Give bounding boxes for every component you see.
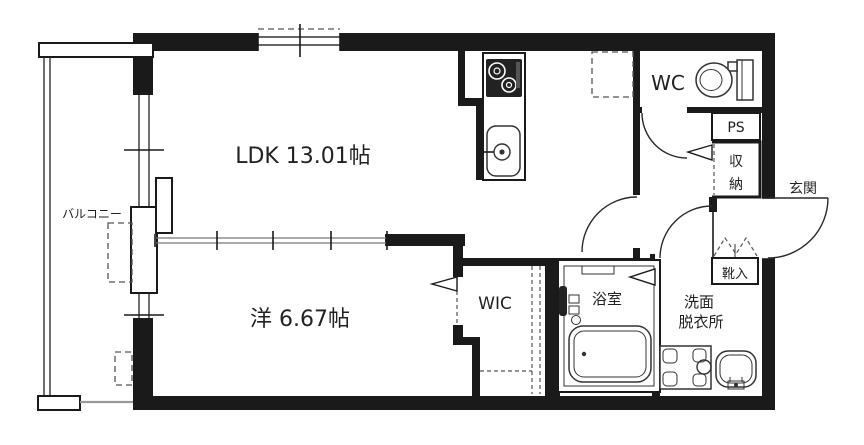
label-wc: WC <box>651 71 685 95</box>
label-ldk: LDK 13.01帖 <box>235 144 371 169</box>
ldk-door-arc <box>582 197 637 252</box>
bathtub <box>569 326 651 382</box>
balcony-window <box>124 95 172 318</box>
label-balcony: バルコニー <box>62 207 122 221</box>
floorplan-drawing: LDK 13.01帖 洋 6.67帖 WIC WC 浴室 洗面 脱衣所 PS 収… <box>0 0 864 445</box>
wic-door-arrow <box>432 277 457 291</box>
kitchen-stove <box>486 59 522 97</box>
label-shoe-cabinet: 靴入 <box>722 267 748 282</box>
bathroom <box>558 260 660 392</box>
top-window <box>258 24 340 57</box>
label-entrance: 玄関 <box>789 180 817 197</box>
storage-door-arrow <box>688 145 712 160</box>
label-western-room: 洋 6.67帖 <box>250 307 350 332</box>
label-storage-1: 収 <box>729 154 743 170</box>
label-bathroom: 浴室 <box>592 290 622 308</box>
floorplan-canvas: LDK 13.01帖 洋 6.67帖 WIC WC 浴室 洗面 脱衣所 PS 収… <box>0 0 864 445</box>
label-storage-2: 納 <box>729 177 743 193</box>
wc-door-arc <box>642 113 687 158</box>
kitchen <box>458 51 633 180</box>
label-wic: WIC <box>478 294 512 314</box>
outdoor-unit-space-2 <box>115 352 132 385</box>
balcony-bottom-wall <box>38 396 80 410</box>
wash-basin <box>716 351 756 389</box>
toilet <box>696 60 753 100</box>
label-ps: PS <box>727 120 744 136</box>
washing-machine-pan <box>660 346 711 389</box>
washroom <box>660 346 756 389</box>
outdoor-unit-space-1 <box>108 223 132 282</box>
balcony-top-wall <box>39 43 153 57</box>
label-washroom-1: 洗面 <box>684 293 714 311</box>
wic-room <box>432 266 540 394</box>
refrigerator-space <box>592 52 633 97</box>
sliding-partition <box>155 231 387 250</box>
storage-closet <box>688 142 760 197</box>
washroom-door-arc <box>660 206 712 258</box>
entrance-door-arc <box>768 198 828 258</box>
label-washroom-2: 脱衣所 <box>678 313 723 331</box>
